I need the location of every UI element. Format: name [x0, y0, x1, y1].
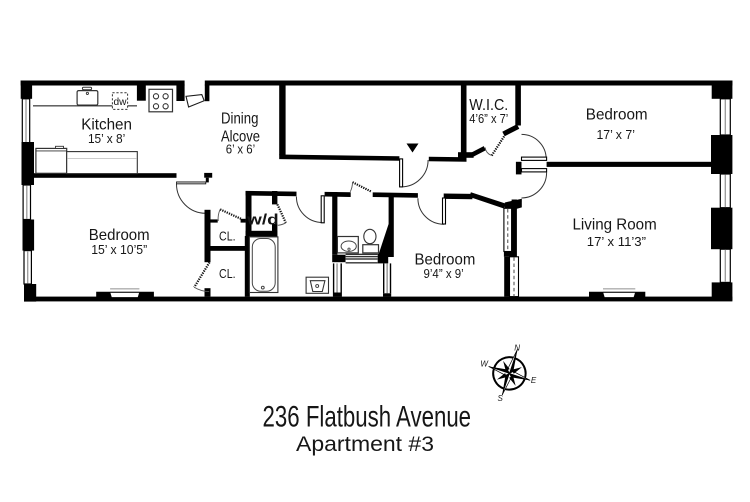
svg-text:4’6” x 7’: 4’6” x 7’ [469, 112, 508, 126]
svg-text:Apartment #3: Apartment #3 [296, 432, 434, 456]
svg-text:Dining: Dining [221, 111, 258, 128]
svg-text:CL.: CL. [219, 267, 236, 281]
svg-text:N: N [514, 344, 520, 353]
svg-text:w/d: w/d [246, 211, 279, 228]
svg-text:236 Flatbush Avenue: 236 Flatbush Avenue [263, 401, 472, 434]
svg-text:S: S [498, 394, 504, 403]
svg-text:Living Room: Living Room [573, 217, 657, 234]
svg-text:15’ x 10’5”: 15’ x 10’5” [91, 243, 147, 257]
svg-text:CL.: CL. [219, 230, 236, 244]
svg-text:dw: dw [114, 96, 127, 108]
svg-text:17’ x 11’3”: 17’ x 11’3” [587, 235, 646, 249]
svg-text:Bedroom: Bedroom [89, 227, 150, 244]
svg-text:9’4” x 9’: 9’4” x 9’ [424, 267, 464, 281]
svg-text:Kitchen: Kitchen [81, 116, 132, 133]
svg-text:Bedroom: Bedroom [586, 106, 648, 123]
svg-text:17’ x 7’: 17’ x 7’ [596, 128, 635, 142]
svg-text:15’ x 8’: 15’ x 8’ [88, 132, 125, 146]
svg-text:6’ x 6’: 6’ x 6’ [226, 143, 255, 157]
svg-text:E: E [531, 376, 537, 385]
